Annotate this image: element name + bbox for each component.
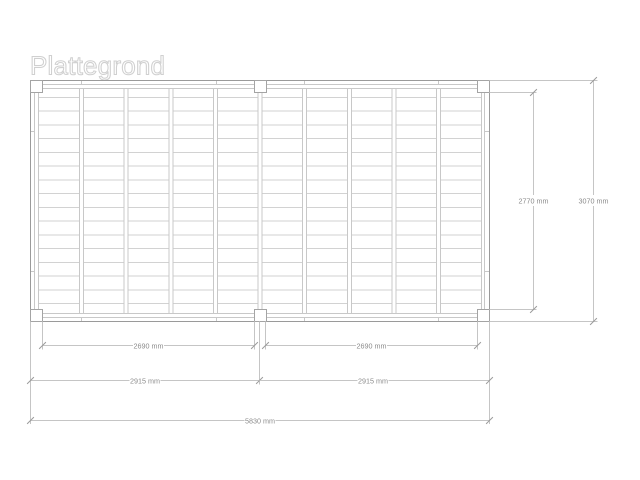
svg-text:2770 mm: 2770 mm [519, 196, 549, 205]
svg-text:3070 mm: 3070 mm [579, 196, 609, 205]
svg-text:Plattegrond: Plattegrond [30, 51, 165, 81]
svg-text:2690 mm: 2690 mm [357, 341, 387, 350]
svg-text:2915 mm: 2915 mm [130, 376, 160, 385]
svg-text:2690 mm: 2690 mm [134, 341, 164, 350]
svg-text:2915 mm: 2915 mm [358, 376, 388, 385]
svg-text:5830 mm: 5830 mm [245, 416, 275, 425]
